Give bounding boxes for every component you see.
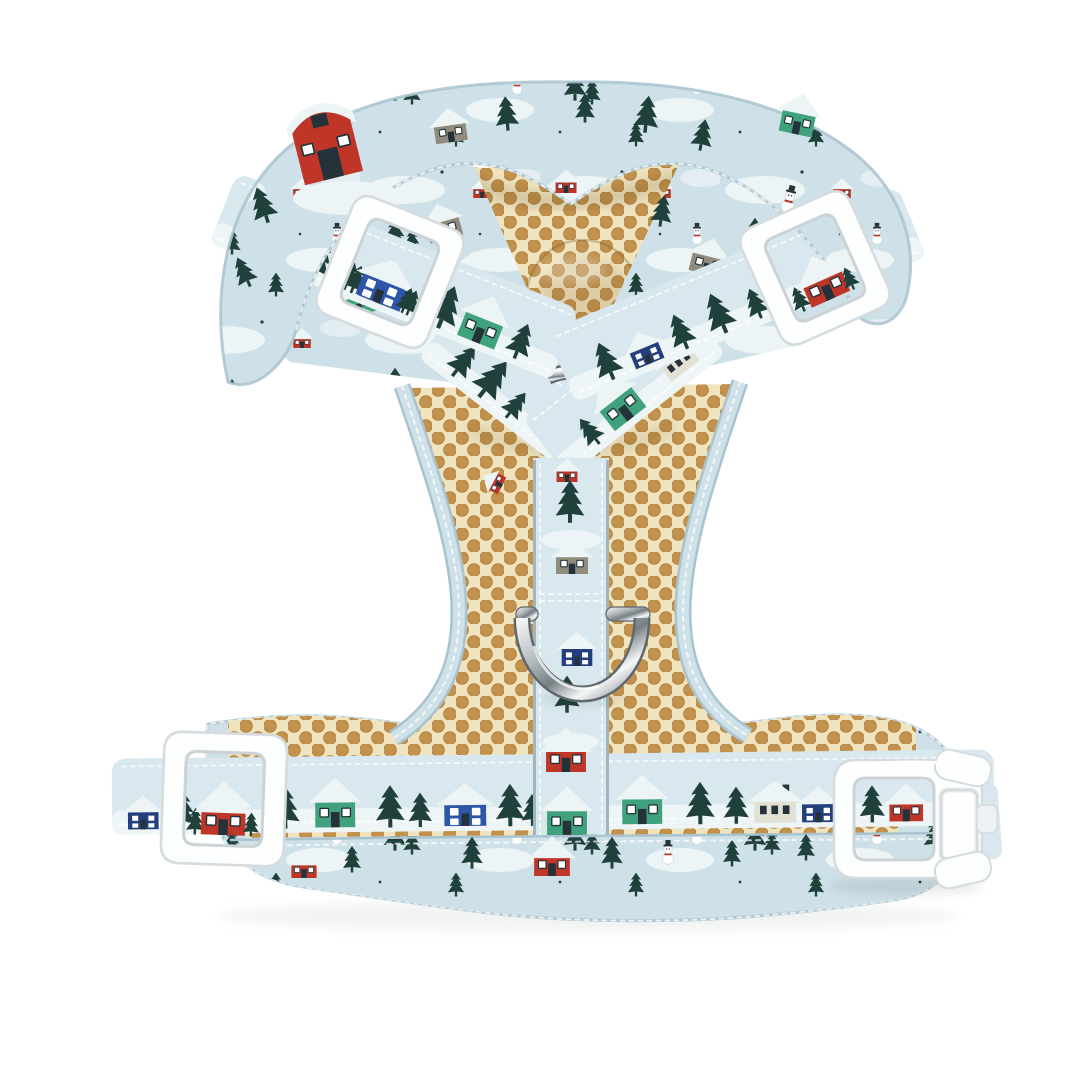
product-photo [0,0,1080,1080]
harness-illustration [0,0,1080,1080]
belly-slider [160,731,287,867]
chest-strap [533,458,609,846]
buckle-latch [977,805,997,833]
